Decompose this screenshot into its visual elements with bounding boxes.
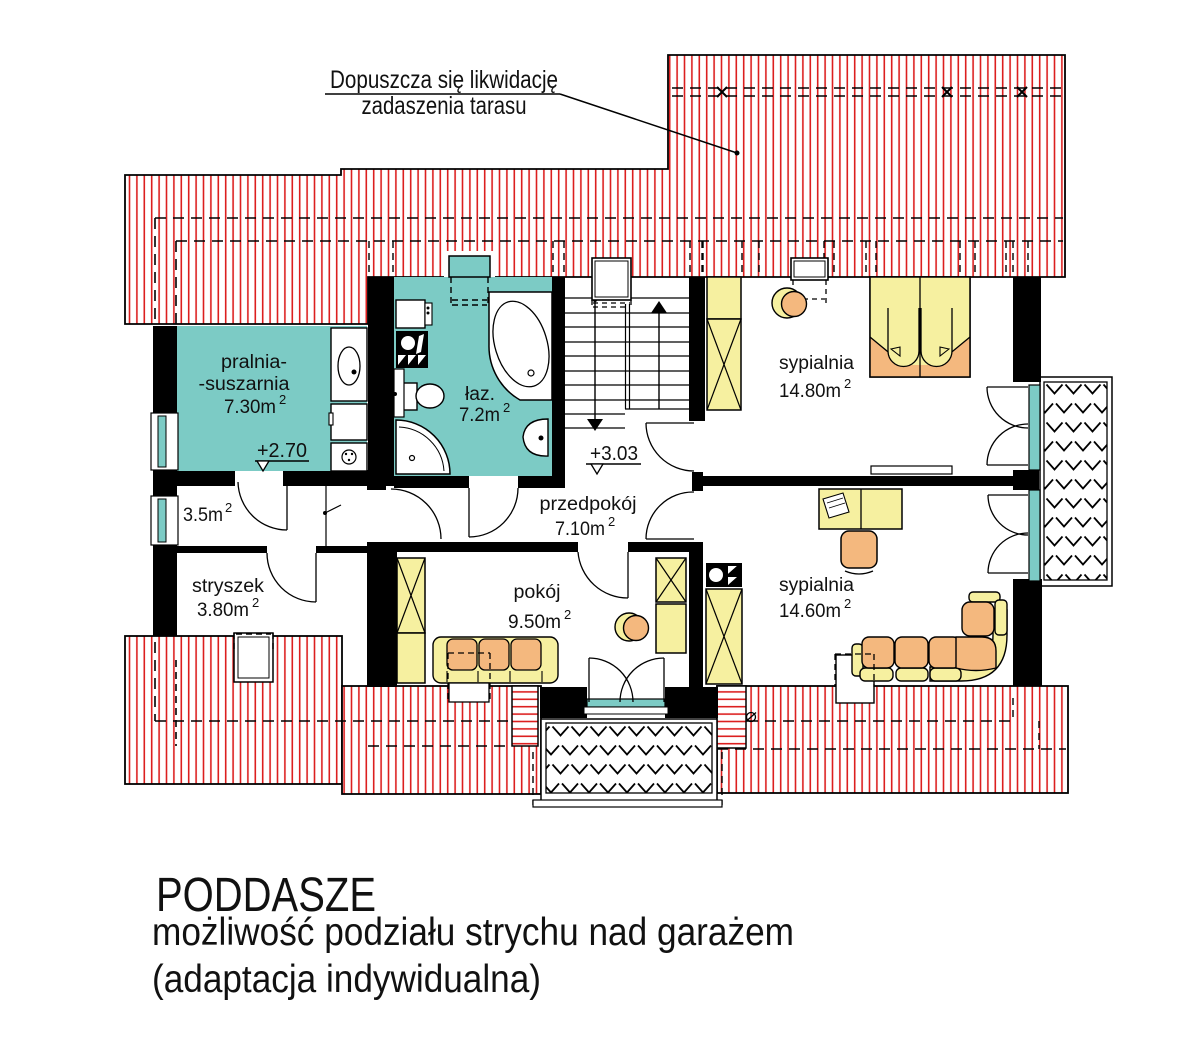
svg-text:(adaptacja indywidualna): (adaptacja indywidualna) [152, 958, 541, 1001]
svg-text:pralnia-: pralnia- [221, 352, 287, 373]
svg-text:2: 2 [279, 392, 286, 407]
svg-text:+3.03: +3.03 [590, 443, 638, 465]
svg-text:2: 2 [225, 500, 232, 515]
svg-text:7.10m: 7.10m [555, 519, 605, 540]
svg-text:Dopuszcza się likwidację: Dopuszcza się likwidację [330, 66, 558, 94]
svg-text:14.80m: 14.80m [779, 381, 841, 402]
svg-text:7.2m: 7.2m [459, 405, 500, 426]
svg-text:łaz.: łaz. [465, 384, 495, 405]
svg-text:stryszek: stryszek [192, 576, 265, 597]
svg-text:sypialnia: sypialnia [779, 353, 854, 374]
svg-text:7.30m: 7.30m [224, 397, 276, 418]
svg-text:2: 2 [564, 607, 571, 622]
svg-text:zadaszenia tarasu: zadaszenia tarasu [362, 92, 527, 120]
svg-text:pokój: pokój [514, 582, 561, 603]
svg-text:2: 2 [252, 595, 259, 610]
svg-text:14.60m: 14.60m [779, 601, 841, 622]
svg-text:2: 2 [844, 376, 851, 391]
svg-text:-suszarnia: -suszarnia [199, 374, 290, 395]
svg-text:+2.70: +2.70 [257, 440, 307, 462]
svg-text:3.80m: 3.80m [197, 600, 249, 621]
svg-text:2: 2 [503, 400, 510, 415]
svg-text:3.5m: 3.5m [183, 505, 223, 526]
svg-text:możliwość podziału strychu nad: możliwość podziału strychu nad garażem [152, 911, 794, 954]
svg-text:przedpokój: przedpokój [540, 494, 637, 515]
svg-text:2: 2 [608, 514, 615, 529]
svg-text:2: 2 [844, 596, 851, 611]
svg-text:9.50m: 9.50m [508, 612, 561, 633]
svg-text:sypialnia: sypialnia [779, 575, 854, 596]
